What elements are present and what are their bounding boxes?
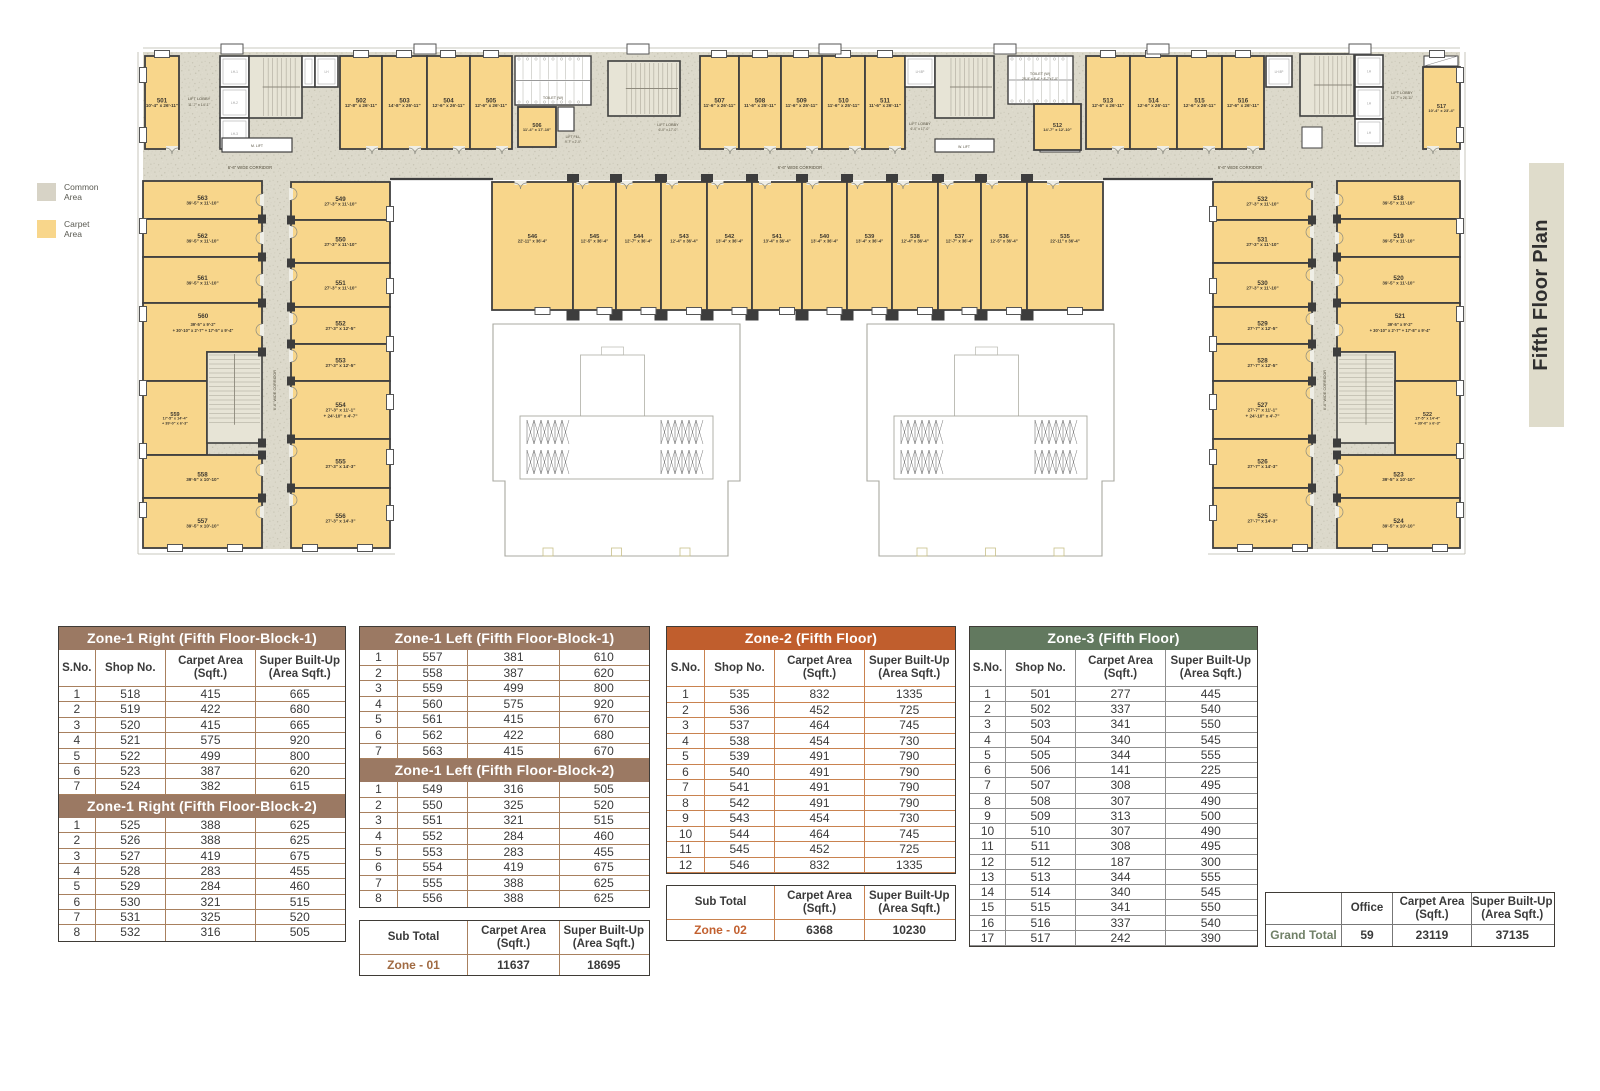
svg-text:27'-3" x 11'-10": 27'-3" x 11'-10" — [1246, 202, 1278, 207]
svg-text:27'-3" x 11'-10": 27'-3" x 11'-10" — [1246, 242, 1278, 247]
svg-text:13'-4" x 36'-4": 13'-4" x 36'-4" — [811, 238, 838, 243]
svg-text:LIFT LOBBY: LIFT LOBBY — [657, 123, 679, 127]
svg-text:12'-4" x 36'-4": 12'-4" x 36'-4" — [901, 238, 928, 243]
svg-text:6'-6" WIDE CORRIDOR: 6'-6" WIDE CORRIDOR — [228, 165, 272, 170]
svg-text:12'-4" x 36'-4": 12'-4" x 36'-4" — [670, 238, 697, 243]
svg-text:W. LIFT: W. LIFT — [958, 145, 970, 149]
svg-text:27'-3" x 12'-5": 27'-3" x 12'-5" — [325, 363, 355, 368]
svg-text:6'-0" x 17'-0": 6'-0" x 17'-0" — [659, 128, 679, 132]
svg-text:LH-1: LH-1 — [231, 70, 238, 74]
svg-text:17'-5" x 14'-4": 17'-5" x 14'-4" — [163, 417, 188, 421]
svg-text:6'-6" WIDE CORRIDOR: 6'-6" WIDE CORRIDOR — [273, 370, 277, 411]
svg-text:LIFT LOBBY: LIFT LOBBY — [188, 96, 211, 101]
svg-text:10'-4" x 23'-4": 10'-4" x 23'-4" — [1428, 108, 1454, 113]
svg-text:9'-7" x 2'-0": 9'-7" x 2'-0" — [565, 140, 581, 144]
svg-text:Carpet: Carpet — [64, 219, 90, 229]
svg-text:+ 39'-0" x 6'-3": + 39'-0" x 6'-3" — [162, 422, 188, 426]
svg-text:39'-5" x 11'-10": 39'-5" x 11'-10" — [1382, 239, 1414, 244]
svg-text:27'-3" x 11'-10": 27'-3" x 11'-10" — [324, 242, 356, 247]
svg-text:LH: LH — [1367, 70, 1372, 74]
svg-text:39'-5" x 11'-10": 39'-5" x 11'-10" — [1382, 281, 1414, 286]
svg-text:12'-6" x 26'-11": 12'-6" x 26'-11" — [1137, 103, 1169, 108]
svg-text:13'-4" x 36'-4": 13'-4" x 36'-4" — [856, 238, 883, 243]
svg-text:27'-3" x 14'-3": 27'-3" x 14'-3" — [325, 464, 355, 469]
svg-text:13'-4" x 36'-4": 13'-4" x 36'-4" — [763, 238, 790, 243]
svg-text:39'-5" x 11'-10": 39'-5" x 11'-10" — [1382, 201, 1414, 206]
svg-text:12'-6" x 26'-11": 12'-6" x 26'-11" — [1227, 103, 1259, 108]
svg-text:TOILET (W): TOILET (W) — [1030, 72, 1051, 76]
svg-text:27'-3" x 11'-10": 27'-3" x 11'-10" — [324, 286, 356, 291]
svg-text:LIFT LOBBY: LIFT LOBBY — [909, 122, 931, 126]
svg-text:10'-4" x 26'-11": 10'-4" x 26'-11" — [146, 103, 178, 108]
svg-text:12'-6" x 26'-11": 12'-6" x 26'-11" — [432, 103, 464, 108]
svg-text:Area: Area — [64, 192, 82, 202]
svg-text:M. LIFT: M. LIFT — [251, 144, 264, 148]
svg-text:27'-3" x 11'-10": 27'-3" x 11'-10" — [1246, 286, 1278, 291]
svg-text:39'-5" x 9'-2": 39'-5" x 9'-2" — [190, 322, 215, 327]
svg-text:11'-6" x 25'-11": 11'-6" x 25'-11" — [827, 103, 859, 108]
svg-text:Area: Area — [64, 229, 82, 239]
svg-text:LH 8P: LH 8P — [916, 70, 925, 74]
svg-text:27'-3" x 11'-10": 27'-3" x 11'-10" — [324, 202, 356, 207]
svg-text:22'-11" x 36'-4": 22'-11" x 36'-4" — [518, 238, 547, 243]
svg-text:Common: Common — [64, 182, 99, 192]
svg-text:+ 30'-10" x 2'-7" + 17'-8" x 9: + 30'-10" x 2'-7" + 17'-8" x 9'-4" — [1370, 328, 1431, 333]
svg-text:LH: LH — [1367, 102, 1372, 106]
svg-text:27'-3" x 11'-1": 27'-3" x 11'-1" — [326, 408, 356, 413]
svg-text:LH-3: LH-3 — [231, 132, 238, 136]
svg-text:12'-7" x 36'-4": 12'-7" x 36'-4" — [625, 238, 652, 243]
svg-text:11'-4" x 17'-10": 11'-4" x 17'-10" — [523, 127, 551, 132]
svg-text:12'-6" x 26'-11": 12'-6" x 26'-11" — [1092, 103, 1124, 108]
svg-text:27'-7" x 11'-1": 27'-7" x 11'-1" — [1248, 408, 1278, 413]
svg-text:LH: LH — [324, 70, 329, 74]
svg-text:27'-3" x 14'-3": 27'-3" x 14'-3" — [325, 519, 355, 524]
svg-text:6'-6" WIDE CORRIDOR: 6'-6" WIDE CORRIDOR — [1323, 370, 1327, 411]
svg-text:27'-7" x 14'-3": 27'-7" x 14'-3" — [1247, 464, 1277, 469]
svg-text:11'-6" x 26'-11": 11'-6" x 26'-11" — [869, 103, 901, 108]
svg-text:39'-5" x 11'-10": 39'-5" x 11'-10" — [186, 201, 218, 206]
svg-text:11'-7" x 26'-11": 11'-7" x 26'-11" — [1391, 96, 1414, 100]
svg-text:12'-6" x 26'-11": 12'-6" x 26'-11" — [1183, 103, 1215, 108]
svg-text:14'-8" x 26'-11": 14'-8" x 26'-11" — [388, 103, 420, 108]
svg-text:27'-7" x 14'-3": 27'-7" x 14'-3" — [1247, 519, 1277, 524]
svg-text:11'-6" x 25'-11": 11'-6" x 25'-11" — [744, 103, 776, 108]
svg-text:13'-4" x 36'-4": 13'-4" x 36'-4" — [716, 238, 743, 243]
svg-text:11'-6" x 25'-11": 11'-6" x 25'-11" — [785, 103, 817, 108]
svg-text:25'-9" x 8'-4" + 8'-7"x7'-0": 25'-9" x 8'-4" + 8'-7"x7'-0" — [1022, 77, 1058, 81]
svg-text:LIFT FILL: LIFT FILL — [566, 135, 581, 139]
svg-text:12'-8" x 26'-11": 12'-8" x 26'-11" — [345, 103, 377, 108]
svg-text:11'-7" x 14'-1": 11'-7" x 14'-1" — [188, 103, 211, 107]
svg-text:+ 39'-0" x 6'-3": + 39'-0" x 6'-3" — [1415, 422, 1441, 426]
svg-text:12'-5" x 36'-4": 12'-5" x 36'-4" — [581, 238, 608, 243]
svg-text:LIFT LOBBY: LIFT LOBBY — [1391, 91, 1413, 95]
svg-text:39'-5" x 10'-10": 39'-5" x 10'-10" — [1382, 477, 1415, 482]
svg-text:+ 30'-10" x 2'-7" + 17'-5" x 9: + 30'-10" x 2'-7" + 17'-5" x 9'-4" — [173, 328, 234, 333]
svg-text:27'-7" x 12'-5": 27'-7" x 12'-5" — [1247, 326, 1277, 331]
svg-text:12'-6" x 26'-11": 12'-6" x 26'-11" — [475, 103, 507, 108]
svg-text:LH: LH — [1367, 131, 1372, 135]
svg-text:14'-7" x 12'-10": 14'-7" x 12'-10" — [1043, 127, 1071, 132]
svg-text:+ 24'-10" x 4'-7": + 24'-10" x 4'-7" — [324, 414, 358, 419]
svg-text:6'-6" WIDE CORRIDOR: 6'-6" WIDE CORRIDOR — [778, 165, 822, 170]
svg-text:TOILET (W): TOILET (W) — [543, 96, 564, 100]
svg-text:39'-5" x 10'-10": 39'-5" x 10'-10" — [1382, 524, 1415, 529]
svg-text:+ 24'-10" x 4'-7": + 24'-10" x 4'-7" — [1246, 414, 1280, 419]
svg-text:27'-7" x 12'-5": 27'-7" x 12'-5" — [1247, 363, 1277, 368]
svg-text:LH-2: LH-2 — [231, 101, 238, 105]
svg-text:6'-0" x 17'-0": 6'-0" x 17'-0" — [911, 127, 931, 131]
svg-text:17'-5" x 14'-4": 17'-5" x 14'-4" — [1415, 417, 1440, 421]
svg-text:39'-5" x 10'-10": 39'-5" x 10'-10" — [186, 524, 219, 529]
svg-text:6'-6" WIDE CORRIDOR: 6'-6" WIDE CORRIDOR — [1218, 165, 1262, 170]
svg-text:12'-5" x 36'-4": 12'-5" x 36'-4" — [990, 238, 1017, 243]
svg-text:27'-3" x 12'-5": 27'-3" x 12'-5" — [325, 326, 355, 331]
svg-text:11'-6" x 26'-11": 11'-6" x 26'-11" — [703, 103, 735, 108]
svg-text:Fifth Floor Plan: Fifth Floor Plan — [1530, 219, 1552, 370]
svg-text:560: 560 — [198, 313, 209, 320]
svg-text:521: 521 — [1395, 313, 1406, 320]
svg-text:22'-11" x 36'-4": 22'-11" x 36'-4" — [1050, 238, 1079, 243]
svg-text:39'-5" x 11'-10": 39'-5" x 11'-10" — [186, 239, 218, 244]
svg-text:12'-7" x 36'-4": 12'-7" x 36'-4" — [946, 238, 973, 243]
svg-text:LH 8P: LH 8P — [1275, 70, 1284, 74]
svg-text:39'-5" x 10'-10": 39'-5" x 10'-10" — [186, 477, 219, 482]
svg-text:39'-5" x 9'-2": 39'-5" x 9'-2" — [1387, 322, 1412, 327]
svg-text:39'-5" x 11'-10": 39'-5" x 11'-10" — [186, 281, 218, 286]
